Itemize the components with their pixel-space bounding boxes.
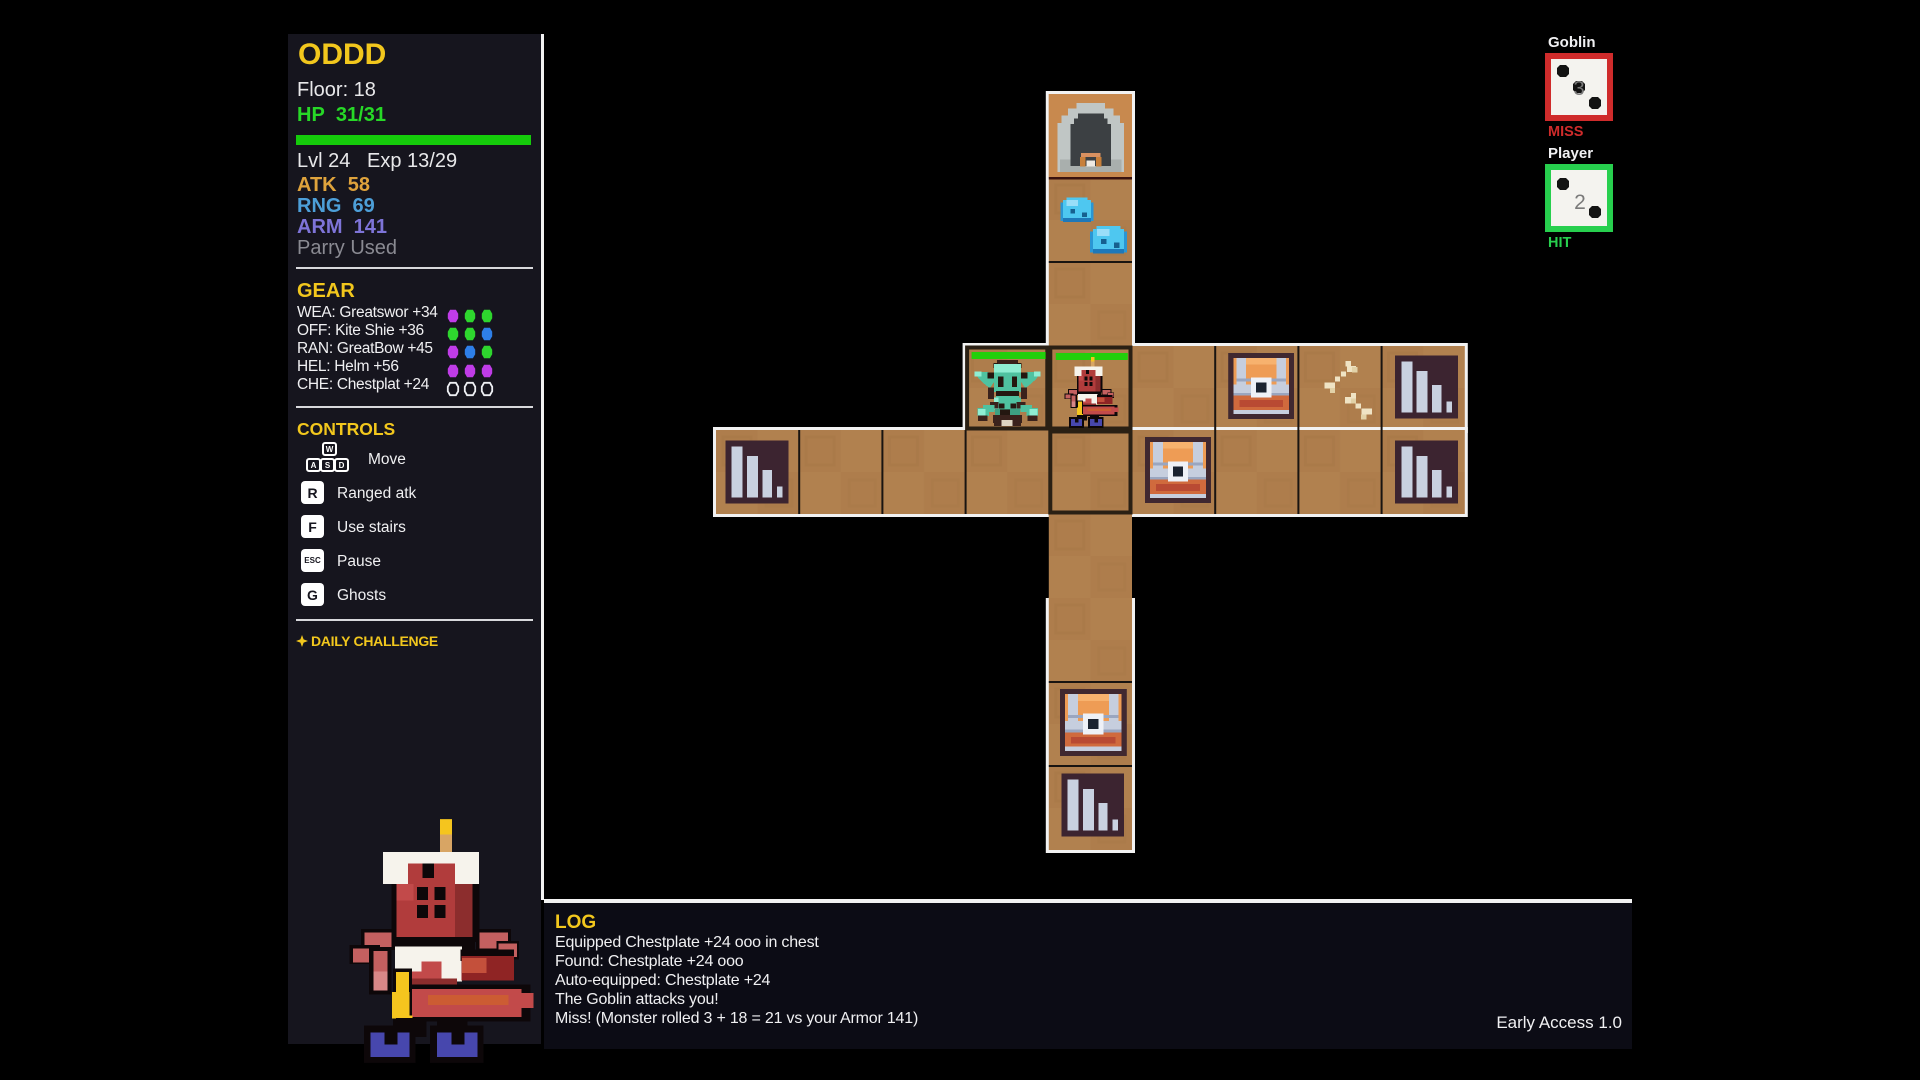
svg-text:2: 2 — [1574, 191, 1586, 214]
svg-text:3: 3 — [1573, 78, 1584, 100]
